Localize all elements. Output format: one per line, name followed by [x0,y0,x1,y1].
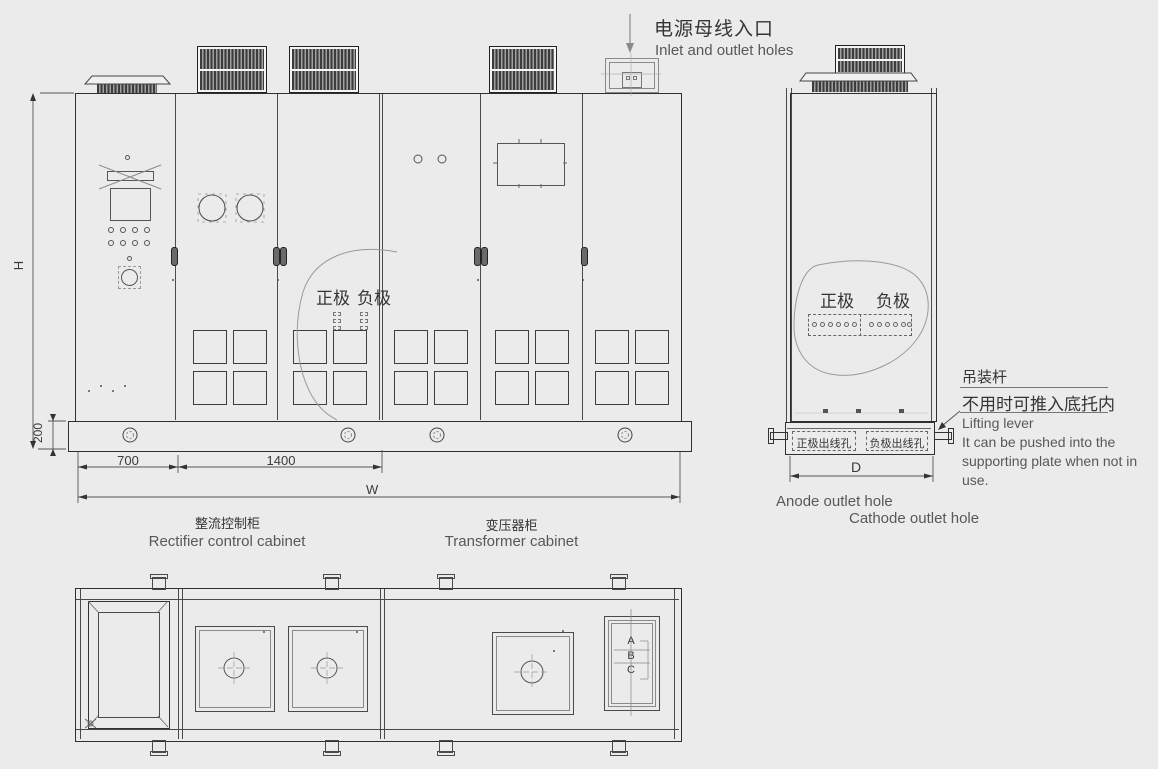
terminal-hole [907,322,912,327]
terminal-hole [885,322,890,327]
louver-vent [394,330,428,364]
grille-slats [200,71,264,91]
door-handle [474,247,481,266]
rivet-dot [100,385,102,387]
inspection-window [497,143,565,186]
grille-slats [838,61,902,72]
lifting-lever-cap-left [768,428,774,444]
lug-tab [325,577,339,590]
plan-top-rail [76,599,679,600]
louver-vent [293,330,327,364]
section-label-b: B [624,650,638,662]
dim-arrow [78,495,87,500]
louver-vent [333,330,367,364]
inlet-label-en: Inlet and outlet holes [655,42,793,59]
grille-slats [492,71,554,91]
door-handle [273,247,280,266]
terminal-mark [360,319,368,323]
dim-transformer-width: 1400 [248,453,314,468]
transformer-caption-en: Transformer cabinet [440,533,583,550]
inlet-label-zh: 电源母线入口 [654,14,774,41]
louver-vent [495,371,529,405]
louver-vent [535,371,569,405]
terminal-hole [893,322,898,327]
dim-arrow [30,93,36,101]
terminal-mark [333,312,341,316]
anode-outlet-label-zh: 正极出线孔 [792,435,856,451]
inlet-arrow [626,14,634,53]
plan-frame-inner [98,612,160,718]
dim-arrow [169,465,178,470]
leader-line [942,411,960,426]
door-handle [280,247,287,266]
cathode-outlet-label-en: Cathode outlet hole [849,510,979,527]
rivet-dot [124,385,126,387]
rivet-dot [562,630,564,632]
anode-outlet-label-en: Anode outlet hole [776,493,893,510]
panel-button [108,240,114,246]
cathode-outlet-label-zh: 负极出线孔 [866,435,928,451]
dim-depth: D [851,459,861,475]
rectifier-caption-en: Rectifier control cabinet [148,533,306,550]
lug-tab [612,577,626,590]
terminal-hole [901,322,906,327]
grille-slats [292,71,356,91]
control-bar [107,171,154,181]
terminal-hole [877,322,882,327]
dim-base-height: 200 [31,423,45,443]
emergency-stop-button [121,269,138,286]
louver-vent [233,371,267,405]
terminal-hole [820,322,825,327]
rivet-dot [553,650,555,652]
lug-cap [610,751,628,756]
grille-slats [292,49,356,69]
lug-cap [323,751,341,756]
rivet-dot [356,631,358,633]
door-handle [171,247,178,266]
roof-grille [489,46,557,93]
louver-vent [635,371,669,405]
louver-vent [434,371,468,405]
terminal-hole [828,322,833,327]
plan-bottom-rail [76,729,679,730]
side-hood-grille [812,81,908,92]
annotation-underline [960,412,1108,413]
panel-button [144,227,150,233]
front-section-divider [379,94,380,420]
front-hood [85,76,170,84]
inlet-screw [626,76,630,80]
grille-slats [492,49,554,69]
dim-height: H [11,261,26,270]
lock-dot [582,279,584,281]
louver-vent [293,371,327,405]
lifting-title-zh: 吊装杆 [962,366,1007,387]
rivet-dot [112,390,114,392]
plan-fan-panel-inner [496,636,570,711]
lug-cap [437,751,455,756]
panel-button [132,227,138,233]
dim-arrow [924,474,933,479]
rectifier-caption-zh: 整流控制柜 [160,513,295,532]
terminal-hole [812,322,817,327]
louver-vent [394,371,428,405]
plan-divider [380,589,381,739]
section-label-c: C [624,664,638,676]
lug-tab [439,577,453,590]
terminal-mark [333,319,341,323]
roof-hood-grille [97,84,157,93]
dim-depth-lines [790,456,933,482]
dim-rectifier-width: 700 [100,453,156,468]
lifting-note-en: It can be pushed into the supporting pla… [962,433,1150,490]
terminal-mark [360,326,368,330]
louver-vent [595,330,629,364]
side-roof-grille [835,45,905,75]
louver-vent [193,371,227,405]
louver-vent [635,330,669,364]
panel-button [108,227,114,233]
rivet-dot [263,631,265,633]
dim-200-lines [48,414,66,456]
plan-fan-panel-inner [292,630,364,708]
terminal-hole [869,322,874,327]
roof-grille [197,46,267,93]
leader-arrow [938,422,946,430]
plan-divider [178,589,179,739]
terminal-hole [844,322,849,327]
dim-total-width: W [366,482,378,497]
rivet-dot [88,390,90,392]
dim-width-lines [78,450,680,503]
terminal-strip-divider [860,314,862,336]
dim-arrow [78,465,87,470]
panel-button [127,256,132,261]
dim-arrow [50,449,56,456]
busbar-inlet-terminal [622,72,642,88]
louver-vent [193,330,227,364]
lock-dot [172,279,174,281]
lock-dot [477,279,479,281]
lifting-title-en: Lifting lever [962,415,1034,431]
dim-arrow [50,414,56,421]
plan-right-cap [674,589,675,739]
panel-button [120,240,126,246]
side-anode-label: 正极 [820,292,854,311]
side-bubble-label: 正极负极 [820,287,910,312]
terminal-mark [333,326,341,330]
terminal-hole [852,322,857,327]
louver-vent [233,330,267,364]
dim-height-lines [33,93,74,449]
louver-vent [495,330,529,364]
terminal-hole [836,322,841,327]
front-cathode-label: 负极 [357,289,391,308]
engineering-drawing: 电源母线入口 Inlet and outlet holes [0,0,1158,769]
door-handle [581,247,588,266]
panel-button [144,240,150,246]
front-section-divider [382,94,383,420]
panel-button [132,240,138,246]
roof-grille [289,46,359,93]
lug-tab [152,577,166,590]
side-base-rail [787,428,931,429]
front-anode-label: 正极 [316,289,350,308]
front-bubble-label: 正极负极 [316,284,391,309]
dim-arrow [373,465,382,470]
dim-arrow [790,474,799,479]
dim-arrow [178,465,187,470]
inlet-screw [633,76,637,80]
louver-vent [595,371,629,405]
grille-slats [838,48,902,59]
front-base-plinth [68,421,692,452]
annotation-underline [960,387,1108,388]
side-view-cabinet-body [790,93,937,422]
louver-vent [535,330,569,364]
transformer-caption-zh: 变压器柜 [455,515,568,534]
lifting-lever-cap-right [948,428,954,444]
plan-divider [384,589,385,739]
door-handle [481,247,488,266]
louver-vent [333,371,367,405]
plan-divider [182,589,183,739]
display-window [110,188,151,221]
indicator-lamp [125,155,130,160]
lug-cap [150,751,168,756]
louver-vent [434,330,468,364]
plan-fan-panel-inner [199,630,271,708]
dim-arrow [671,495,680,500]
terminal-mark [360,312,368,316]
panel-button [120,227,126,233]
plan-left-cap [80,589,81,739]
lock-dot [277,279,279,281]
grille-slats [200,49,264,69]
section-label-a: A [624,635,638,647]
side-cathode-label: 负极 [876,292,910,311]
